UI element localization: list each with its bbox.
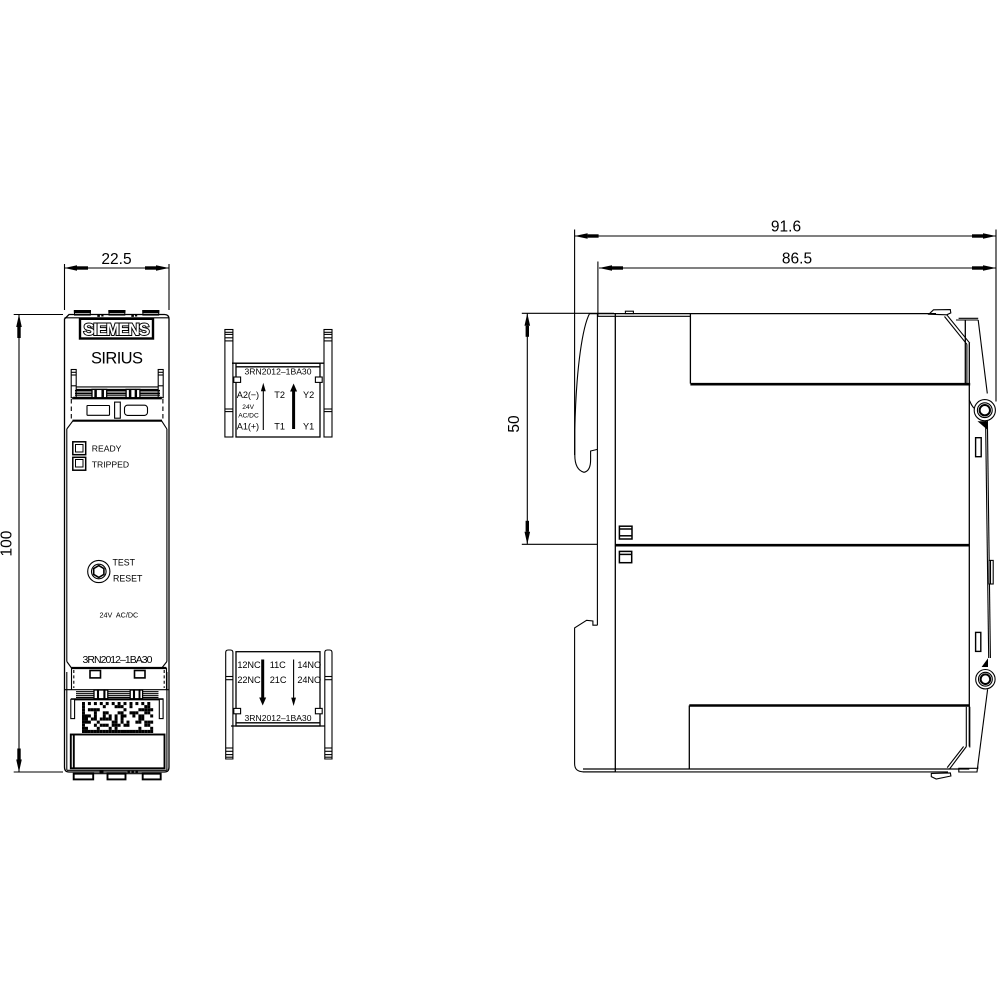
svg-text:A1(+): A1(+)	[237, 421, 259, 431]
svg-text:24NO: 24NO	[297, 675, 321, 685]
svg-text:TEST: TEST	[113, 558, 136, 568]
svg-text:11C: 11C	[270, 660, 286, 670]
svg-text:12NC: 12NC	[237, 660, 261, 670]
svg-text:3RN2012–1BA30: 3RN2012–1BA30	[245, 713, 312, 723]
svg-text:3RN2012–1BA30: 3RN2012–1BA30	[83, 654, 153, 666]
svg-text:50: 50	[506, 415, 523, 433]
svg-text:RESET: RESET	[113, 574, 143, 584]
svg-text:T1: T1	[274, 421, 285, 431]
svg-text:AC/DC: AC/DC	[238, 412, 259, 419]
svg-text:24V: 24V	[242, 404, 254, 411]
svg-text:3RN2012–1BA30: 3RN2012–1BA30	[245, 367, 312, 377]
svg-text:TRIPPED: TRIPPED	[92, 459, 129, 469]
svg-text:91.6: 91.6	[771, 219, 801, 236]
svg-text:22NC: 22NC	[237, 675, 261, 685]
svg-text:14NO: 14NO	[297, 660, 321, 670]
svg-text:22.5: 22.5	[101, 251, 131, 268]
svg-text:T2: T2	[274, 390, 285, 400]
svg-text:READY: READY	[92, 444, 122, 454]
svg-text:86.5: 86.5	[782, 251, 812, 268]
svg-text:SIRIUS: SIRIUS	[91, 350, 143, 368]
svg-text:SIEMENS: SIEMENS	[84, 321, 150, 339]
svg-text:A2(−): A2(−)	[237, 390, 259, 400]
svg-text:Y1: Y1	[303, 421, 314, 431]
svg-text:100: 100	[0, 530, 16, 556]
svg-text:Y2: Y2	[303, 390, 314, 400]
svg-text:24V AC/DC: 24V AC/DC	[100, 611, 139, 620]
svg-text:21C: 21C	[270, 675, 287, 685]
